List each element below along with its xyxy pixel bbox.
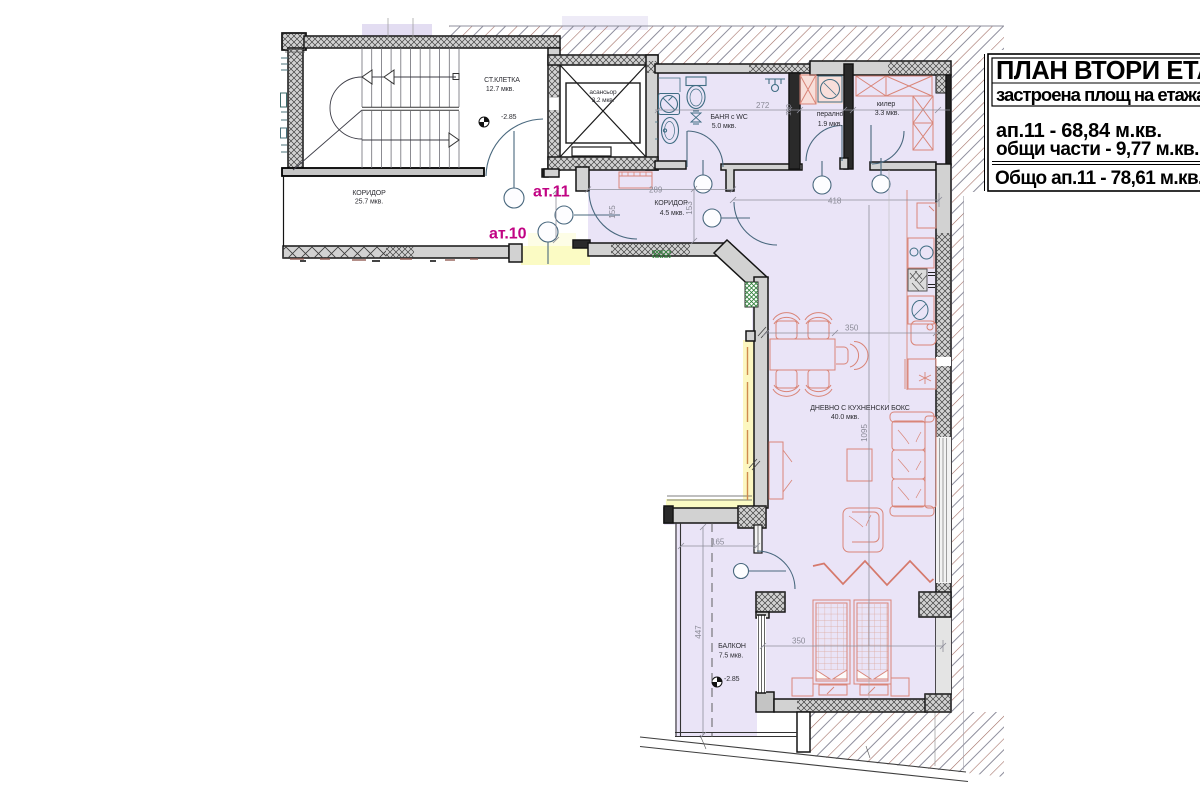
svg-text:100: 100 <box>786 104 793 116</box>
svg-text:5.0 мкв.: 5.0 мкв. <box>712 123 737 130</box>
svg-text:25.7 мкв.: 25.7 мкв. <box>355 199 383 206</box>
svg-text:Общо ап.11 - 78,61 м.кв.: Общо ап.11 - 78,61 м.кв. <box>995 168 1200 189</box>
svg-text:155: 155 <box>608 205 617 219</box>
svg-text:272: 272 <box>756 101 770 110</box>
svg-text:-2.85: -2.85 <box>501 114 517 121</box>
svg-text:7.5 мкв.: 7.5 мкв. <box>719 653 744 660</box>
svg-text:асансьор: асансьор <box>589 89 617 96</box>
svg-text:1.9 мкв.: 1.9 мкв. <box>818 121 843 128</box>
svg-text:350: 350 <box>845 324 859 333</box>
svg-text:общи части - 9,77 м.кв.: общи части - 9,77 м.кв. <box>996 139 1199 160</box>
svg-text:застроена площ на етажа: застроена площ на етажа <box>996 84 1200 105</box>
svg-text:40.0 мкв.: 40.0 мкв. <box>831 414 859 421</box>
svg-text:килер: килер <box>877 101 896 108</box>
svg-text:12.7 мкв.: 12.7 мкв. <box>486 86 514 93</box>
svg-text:3.2 мкв.: 3.2 мкв. <box>592 97 615 104</box>
svg-text:КОРИДОР: КОРИДОР <box>352 190 386 197</box>
svg-text:ат.11: ат.11 <box>533 184 570 201</box>
svg-text:350: 350 <box>792 637 806 646</box>
svg-text:289: 289 <box>649 186 663 195</box>
svg-text:418: 418 <box>828 197 842 206</box>
svg-text:перално: перално <box>817 111 844 118</box>
svg-text:3.3 мкв.: 3.3 мкв. <box>875 110 900 117</box>
svg-text:ДНЕВНО С КУХНЕНСКИ БОКС: ДНЕВНО С КУХНЕНСКИ БОКС <box>810 405 909 412</box>
svg-text:4.5 мкв.: 4.5 мкв. <box>660 210 685 217</box>
svg-text:ПЛАН ВТОРИ ЕТАЖ: ПЛАН ВТОРИ ЕТАЖ <box>996 57 1200 85</box>
svg-text:ат.10: ат.10 <box>489 226 527 243</box>
svg-text:165: 165 <box>711 538 725 547</box>
svg-text:БАЛКОН: БАЛКОН <box>718 643 746 650</box>
svg-text:КОРИДОР: КОРИДОР <box>654 200 688 207</box>
svg-text:БАНЯ с WC: БАНЯ с WC <box>710 114 747 121</box>
svg-text:СТ.КЛЕТКА: СТ.КЛЕТКА <box>484 77 520 84</box>
svg-text:-2.85: -2.85 <box>724 676 740 683</box>
svg-text:1095: 1095 <box>860 424 869 442</box>
svg-text:447: 447 <box>694 625 703 639</box>
